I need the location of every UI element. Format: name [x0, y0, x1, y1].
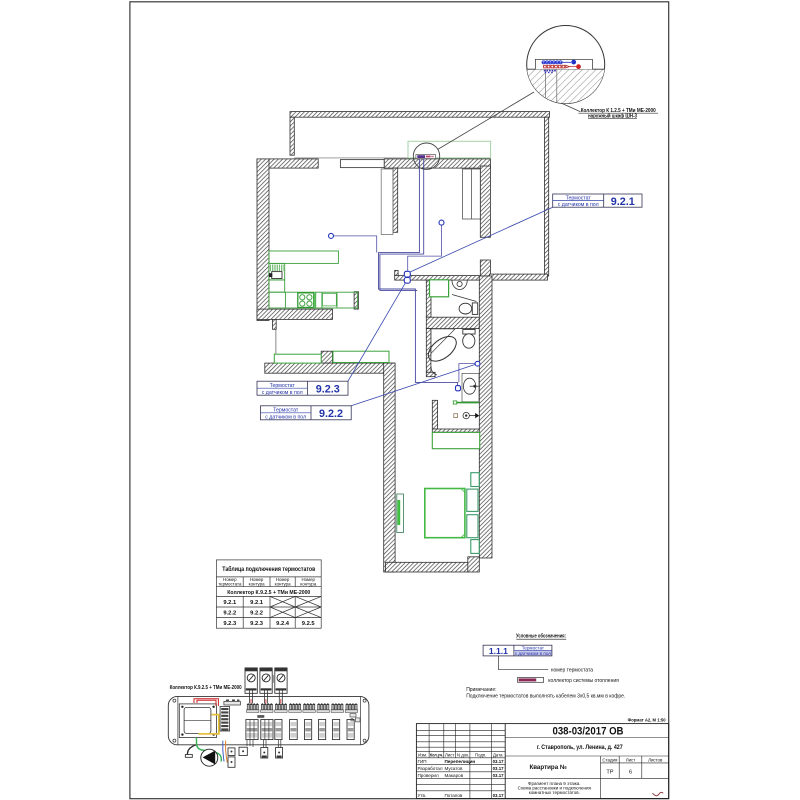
svg-text:с датчиком в пол: с датчиком в пол [265, 414, 306, 420]
svg-text:с датчиком в пол: с датчиком в пол [558, 202, 599, 208]
svg-text:Листов: Листов [648, 758, 663, 763]
svg-text:термостата: термостата [218, 582, 242, 587]
svg-text:03.17: 03.17 [493, 766, 505, 771]
svg-text:ГИП: ГИП [418, 759, 427, 764]
svg-text:Разработал: Разработал [418, 766, 443, 771]
svg-text:N док.: N док. [457, 753, 469, 758]
svg-text:9.2.2: 9.2.2 [250, 610, 263, 616]
svg-text:Макаров: Макаров [445, 773, 464, 778]
svg-text:Потапов: Потапов [445, 793, 463, 798]
svg-text:Термостат: Термостат [566, 195, 592, 201]
svg-text:Утв.: Утв. [418, 793, 427, 798]
svg-text:Термостат: Термостат [270, 383, 296, 389]
svg-text:Коллектор К.9.2.5 + ТМи МЕ-200: Коллектор К.9.2.5 + ТМи МЕ-2000 [227, 590, 310, 596]
svg-text:9.2.5: 9.2.5 [302, 621, 316, 627]
svg-text:Квартира №: Квартира № [529, 764, 566, 771]
svg-text:Перепелицин: Перепелицин [445, 759, 476, 764]
svg-text:контура: контура [300, 582, 316, 587]
svg-text:9.2.3: 9.2.3 [250, 621, 264, 627]
svg-text:Условные обозначения:: Условные обозначения: [516, 633, 566, 640]
svg-text:Подключение термостатов выполн: Подключение термостатов выполнять кабеле… [466, 693, 625, 699]
svg-text:Термостат: Термостат [273, 408, 299, 414]
svg-text:Таблица подключения термостато: Таблица подключения термостатов [222, 566, 315, 573]
svg-text:Изм.: Изм. [418, 753, 427, 758]
svg-text:с датчиком в пол: с датчиком в пол [515, 651, 551, 656]
svg-text:03.17: 03.17 [493, 759, 505, 764]
svg-text:9.2.4: 9.2.4 [276, 621, 290, 627]
svg-text:6: 6 [629, 769, 632, 775]
svg-text:г. Ставрополь, ул. Ленина, д.: г. Ставрополь, ул. Ленина, д. 427 [537, 745, 624, 751]
svg-text:Лист: Лист [626, 758, 636, 763]
svg-text:1.1.1: 1.1.1 [489, 646, 508, 656]
svg-text:038-03/2017 ОВ: 038-03/2017 ОВ [553, 726, 624, 738]
svg-text:03.17: 03.17 [493, 773, 505, 778]
svg-text:9.2.3: 9.2.3 [223, 621, 237, 627]
svg-text:Проверил: Проверил [418, 773, 439, 778]
svg-text:9.2.1: 9.2.1 [223, 600, 237, 606]
svg-text:9.2.2: 9.2.2 [319, 408, 343, 420]
svg-text:ТР: ТР [606, 769, 613, 775]
svg-text:комнатных термостатов.: комнатных термостатов. [529, 790, 580, 795]
svg-text:9.2.3: 9.2.3 [316, 384, 340, 396]
svg-text:Подп.: Подп. [475, 753, 486, 758]
svg-text:03.17: 03.17 [493, 793, 505, 798]
svg-text:Примечание:: Примечание: [466, 687, 496, 693]
svg-text:9.2.2: 9.2.2 [223, 610, 236, 616]
svg-text:9.2.1: 9.2.1 [250, 600, 264, 606]
svg-text:Мусатов: Мусатов [445, 766, 463, 771]
svg-text:с датчиком в пол: с датчиком в пол [262, 390, 303, 396]
svg-text:9.2.1: 9.2.1 [611, 196, 635, 208]
svg-text:Коллектор К.9.2.5 + ТМи МЕ-200: Коллектор К.9.2.5 + ТМи МЕ-2000 [170, 685, 242, 691]
svg-text:Лист: Лист [445, 753, 454, 758]
svg-text:Стадия: Стадия [602, 758, 618, 763]
svg-text:Формат А2, М 1:50: Формат А2, М 1:50 [628, 718, 667, 723]
svg-text:Дата: Дата [493, 753, 503, 758]
svg-text:Кол.уч.: Кол.уч. [430, 753, 443, 758]
svg-text:номер термостата: номер термостата [551, 668, 594, 674]
svg-text:контура: контура [249, 582, 265, 587]
svg-text:Термостат: Термостат [522, 646, 545, 651]
svg-text:коллектор системы отопления: коллектор системы отопления [548, 678, 619, 684]
svg-text:контура: контура [275, 582, 291, 587]
